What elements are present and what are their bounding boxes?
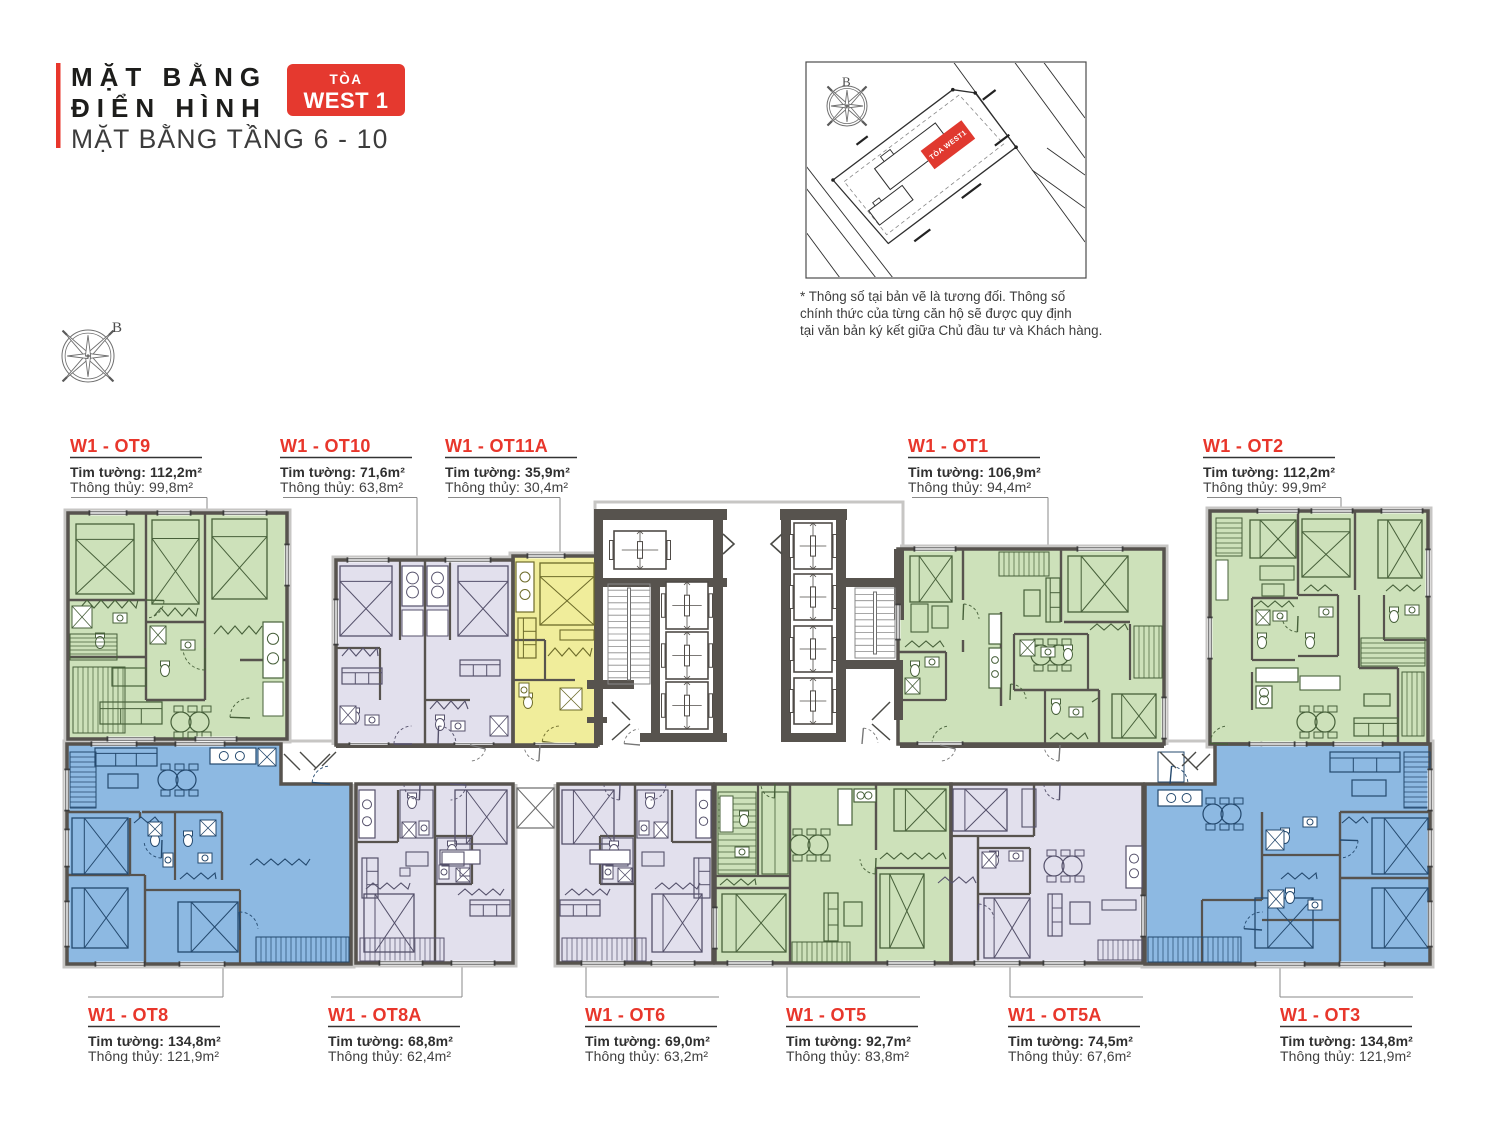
- svg-text:Thông thủy: 121,9m²: Thông thủy: 121,9m²: [88, 1048, 219, 1064]
- svg-text:Thông thủy: 30,4m²: Thông thủy: 30,4m²: [445, 479, 568, 495]
- svg-text:W1 - OT9: W1 - OT9: [70, 436, 150, 456]
- svg-text:Tim tường: 35,9m²: Tim tường: 35,9m²: [445, 464, 570, 480]
- svg-text:Tim tường: 71,6m²: Tim tường: 71,6m²: [280, 464, 405, 480]
- svg-text:WEST 1: WEST 1: [304, 88, 389, 113]
- svg-text:Tim tường: 134,8m²: Tim tường: 134,8m²: [88, 1033, 221, 1049]
- svg-text:W1 - OT5A: W1 - OT5A: [1008, 1005, 1102, 1025]
- svg-text:Tim tường: 106,9m²: Tim tường: 106,9m²: [908, 464, 1041, 480]
- svg-text:MẶT BẰNG: MẶT BẰNG: [71, 62, 267, 92]
- svg-text:MẶT BẰNG TẦNG 6 - 10: MẶT BẰNG TẦNG 6 - 10: [71, 124, 389, 154]
- svg-text:tại văn bản ký kết giữa Chủ đầ: tại văn bản ký kết giữa Chủ đầu tư và Kh…: [800, 323, 1102, 338]
- svg-text:TÒA: TÒA: [330, 72, 363, 87]
- svg-text:W1 - OT10: W1 - OT10: [280, 436, 371, 456]
- svg-text:W1 - OT6: W1 - OT6: [585, 1005, 665, 1025]
- svg-text:Thông thủy: 63,2m²: Thông thủy: 63,2m²: [585, 1048, 708, 1064]
- svg-text:Thông thủy: 83,8m²: Thông thủy: 83,8m²: [786, 1048, 909, 1064]
- svg-text:Thông thủy: 63,8m²: Thông thủy: 63,8m²: [280, 479, 403, 495]
- svg-text:W1 - OT3: W1 - OT3: [1280, 1005, 1360, 1025]
- svg-text:W1 - OT8A: W1 - OT8A: [328, 1005, 422, 1025]
- svg-text:Thông thủy: 62,4m²: Thông thủy: 62,4m²: [328, 1048, 451, 1064]
- svg-text:* Thông số tại bản vẽ là tương: * Thông số tại bản vẽ là tương đối. Thôn…: [800, 289, 1066, 304]
- svg-text:W1 - OT2: W1 - OT2: [1203, 436, 1283, 456]
- svg-text:Thông thủy: 99,8m²: Thông thủy: 99,8m²: [70, 479, 193, 495]
- svg-text:W1 - OT8: W1 - OT8: [88, 1005, 168, 1025]
- svg-text:Tim tường: 92,7m²: Tim tường: 92,7m²: [786, 1033, 911, 1049]
- svg-text:chính thức của từng căn hộ sẽ: chính thức của từng căn hộ sẽ được quy đ…: [800, 306, 1072, 321]
- svg-text:W1 - OT5: W1 - OT5: [786, 1005, 866, 1025]
- svg-text:B: B: [112, 320, 122, 336]
- svg-text:Tim tường: 69,0m²: Tim tường: 69,0m²: [585, 1033, 710, 1049]
- svg-text:Tim tường: 134,8m²: Tim tường: 134,8m²: [1280, 1033, 1413, 1049]
- svg-text:Thông thủy: 121,9m²: Thông thủy: 121,9m²: [1280, 1048, 1411, 1064]
- svg-text:Thông thủy: 99,9m²: Thông thủy: 99,9m²: [1203, 479, 1326, 495]
- svg-text:W1 - OT1: W1 - OT1: [908, 436, 988, 456]
- svg-text:Tim tường: 112,2m²: Tim tường: 112,2m²: [1203, 464, 1335, 480]
- svg-text:Tim tường: 74,5m²: Tim tường: 74,5m²: [1008, 1033, 1133, 1049]
- svg-text:ĐIỂN HÌNH: ĐIỂN HÌNH: [71, 93, 267, 123]
- svg-text:B: B: [842, 74, 851, 89]
- svg-text:W1 - OT11A: W1 - OT11A: [445, 436, 548, 456]
- svg-text:Tim tường: 112,2m²: Tim tường: 112,2m²: [70, 464, 202, 480]
- svg-text:Tim tường: 68,8m²: Tim tường: 68,8m²: [328, 1033, 453, 1049]
- svg-text:Thông thủy: 94,4m²: Thông thủy: 94,4m²: [908, 479, 1031, 495]
- svg-text:Thông thủy: 67,6m²: Thông thủy: 67,6m²: [1008, 1048, 1131, 1064]
